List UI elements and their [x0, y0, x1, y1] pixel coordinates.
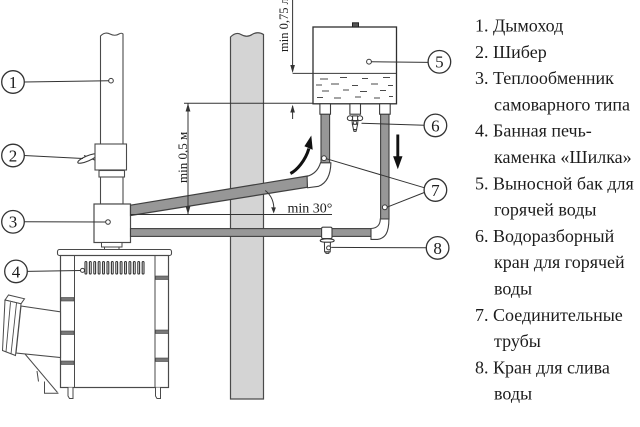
- svg-text:5: 5: [435, 53, 444, 72]
- svg-text:4. Банная печь-: 4. Банная печь-: [475, 121, 592, 141]
- svg-text:3: 3: [9, 213, 18, 232]
- svg-text:6. Водоразборный: 6. Водоразборный: [475, 226, 615, 246]
- svg-text:min 0,5 м: min 0,5 м: [175, 132, 190, 183]
- svg-text:1. Дымоход: 1. Дымоход: [475, 16, 563, 36]
- svg-text:самоварного типа: самоварного типа: [494, 94, 630, 114]
- svg-text:кран для горячей: кран для горячей: [494, 252, 625, 272]
- svg-text:каменка «Шилка»: каменка «Шилка»: [494, 147, 632, 167]
- svg-text:6: 6: [431, 116, 440, 135]
- svg-text:5. Выносной бак для: 5. Выносной бак для: [475, 173, 634, 193]
- svg-text:7: 7: [431, 181, 440, 200]
- svg-text:8. Кран для слива: 8. Кран для слива: [475, 357, 610, 377]
- svg-text:min 0,75 л: min 0,75 л: [277, 0, 291, 52]
- svg-text:8: 8: [433, 239, 442, 258]
- svg-text:2. Шибер: 2. Шибер: [475, 42, 547, 62]
- svg-text:2: 2: [9, 146, 18, 165]
- svg-text:трубы: трубы: [494, 331, 541, 351]
- svg-text:1: 1: [9, 73, 18, 92]
- svg-text:4: 4: [12, 262, 21, 281]
- svg-text:min 30°: min 30°: [288, 202, 333, 217]
- svg-text:воды: воды: [494, 384, 532, 404]
- svg-text:горячей воды: горячей воды: [494, 200, 597, 220]
- svg-text:7. Соединительные: 7. Соединительные: [475, 305, 623, 325]
- svg-text:3. Теплообменник: 3. Теплообменник: [475, 68, 614, 88]
- svg-text:воды: воды: [494, 279, 532, 299]
